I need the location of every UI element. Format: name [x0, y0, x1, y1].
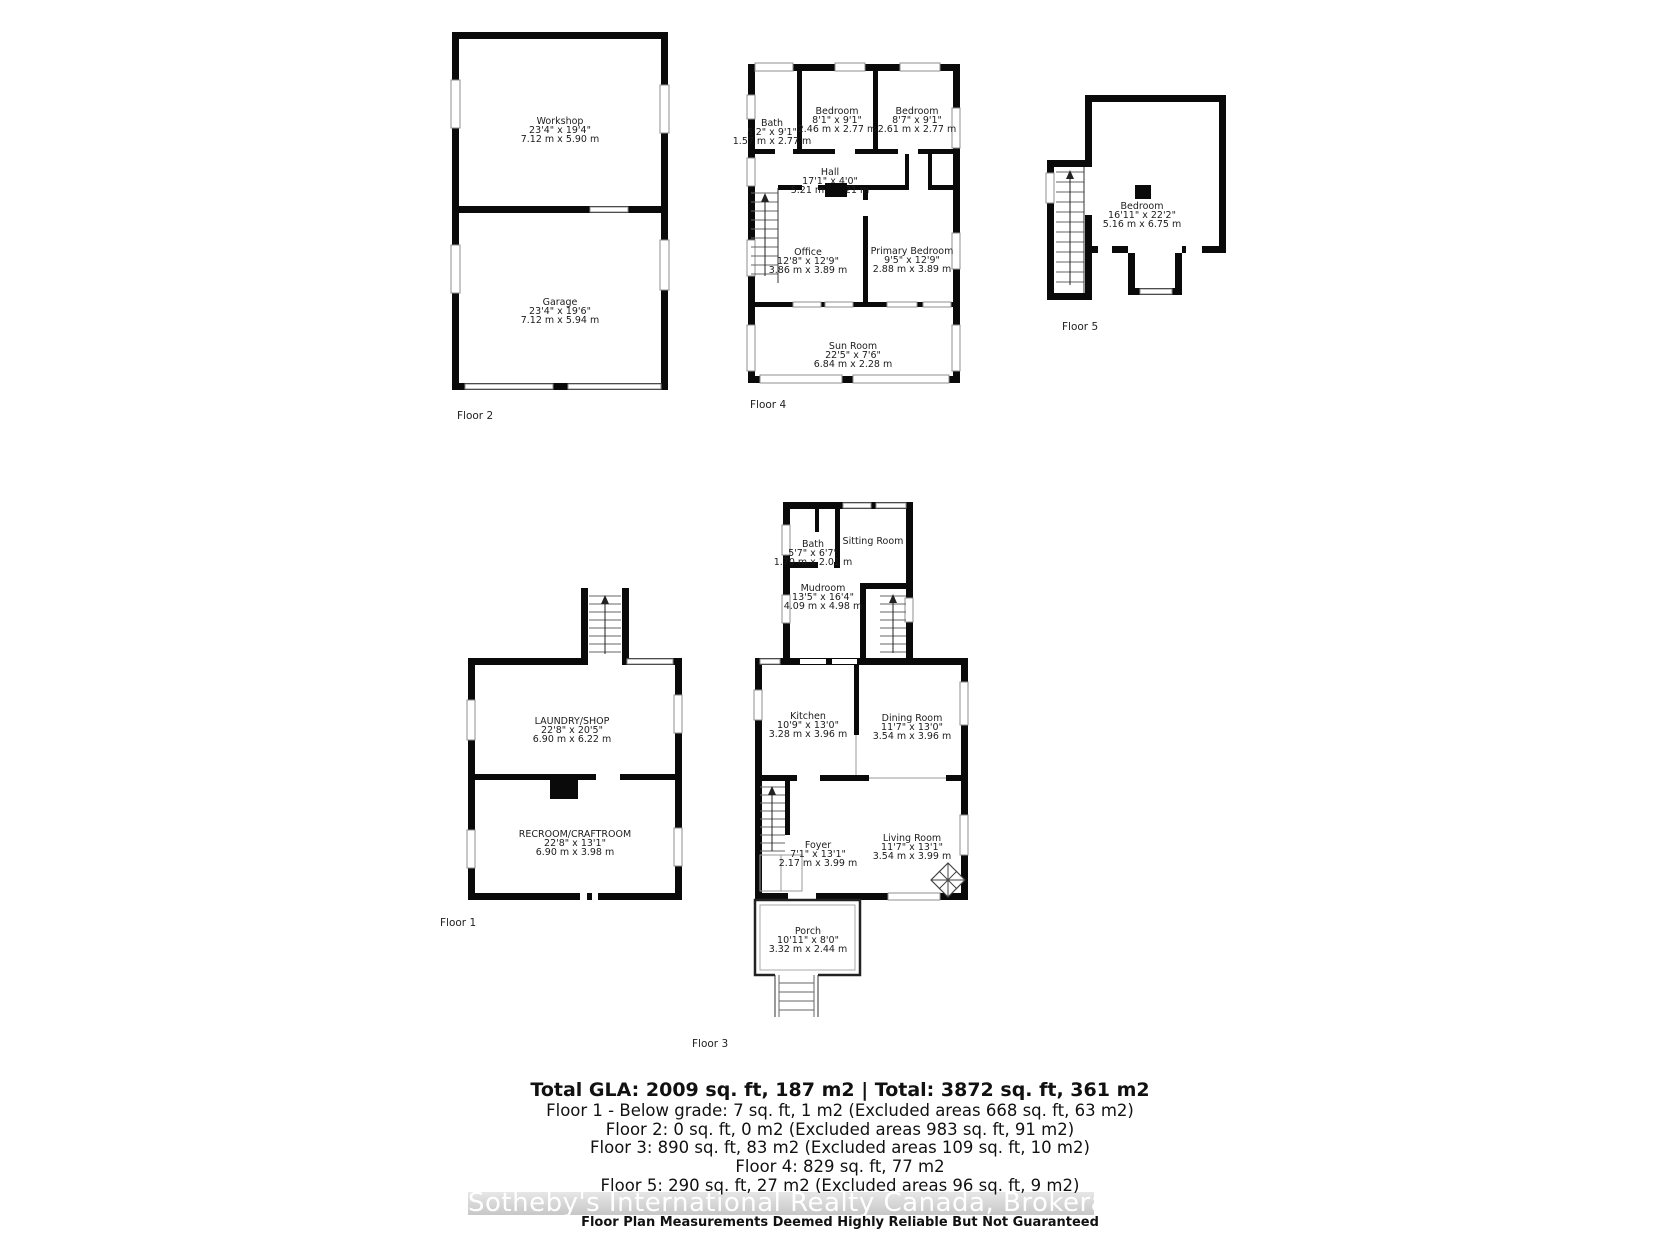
room-label-f3-bath-metric: 1.70 m x 2.01 m	[774, 557, 853, 568]
floor5-stairs	[1056, 167, 1084, 293]
room-label-f4-primary-metric: 2.88 m x 3.89 m	[873, 264, 952, 275]
floor5-chimney	[1135, 185, 1151, 199]
room-label-f4-bath-metric: 1.57 m x 2.77 m	[733, 136, 812, 147]
summary-floor5: Floor 5: 290 sq. ft, 27 m2 (Excluded are…	[0, 1177, 1680, 1196]
summary-floor4: Floor 4: 829 sq. ft, 77 m2	[0, 1158, 1680, 1177]
summary-total: Total GLA: 2009 sq. ft, 187 m2 | Total: …	[0, 1079, 1680, 1101]
floor-5-plan: Bedroom 16'11" x 22'2" 5.16 m x 6.75 m F…	[1040, 75, 1240, 345]
room-label-f3-foyer-metric: 2.17 m x 3.99 m	[779, 858, 858, 869]
area-summary: Total GLA: 2009 sq. ft, 187 m2 | Total: …	[0, 1079, 1680, 1196]
room-label-f4-sunroom-metric: 6.84 m x 2.28 m	[814, 359, 893, 370]
floor1-stairs	[589, 595, 621, 654]
floor-3-plan: Bath 5'7" x 6'7" 1.70 m x 2.01 m Sitting…	[680, 455, 1000, 1055]
room-label-f3-kitchen-metric: 3.28 m x 3.96 m	[769, 729, 848, 740]
floor-5-label: Floor 5	[1062, 321, 1098, 333]
room-label-recroom-metric: 6.90 m x 3.98 m	[536, 847, 615, 858]
floor-2-plan: Workshop 23'4" x 19'4" 7.12 m x 5.90 m G…	[440, 20, 680, 440]
floor-1-plan: LAUNDRY/SHOP 22'8" x 20'5" 6.90 m x 6.22…	[430, 540, 690, 940]
room-label-f3-mudroom-metric: 4.09 m x 4.98 m	[784, 601, 863, 612]
room-label-laundry-metric: 6.90 m x 6.22 m	[533, 734, 612, 745]
floor-4-plan: Bath 5'2" x 9'1" 1.57 m x 2.77 m Bedroom…	[735, 50, 975, 420]
room-label-f3-living-metric: 3.54 m x 3.99 m	[873, 851, 952, 862]
disclaimer-text: Floor Plan Measurements Deemed Highly Re…	[0, 1215, 1680, 1230]
room-label-f3-dining-metric: 3.54 m x 3.96 m	[873, 731, 952, 742]
room-label-f5-bedroom-metric: 5.16 m x 6.75 m	[1103, 219, 1182, 230]
room-label-f3-porch-metric: 3.32 m x 2.44 m	[769, 944, 848, 955]
room-label-workshop-metric: 7.12 m x 5.90 m	[521, 134, 600, 145]
floor3-annex-stairs	[880, 594, 906, 653]
room-label-f4-bedroom1-metric: 2.46 m x 2.77 m	[798, 124, 877, 135]
floorplan-page: Workshop 23'4" x 19'4" 7.12 m x 5.90 m G…	[0, 0, 1680, 1260]
floor1-chimney	[550, 780, 578, 799]
floor3-compass-diamond	[931, 863, 965, 897]
summary-floor3: Floor 3: 890 sq. ft, 83 m2 (Excluded are…	[0, 1139, 1680, 1158]
floor3-porch-steps	[775, 975, 818, 1017]
floor3-foyer-stairs	[760, 786, 802, 891]
floor-4-label: Floor 4	[750, 399, 786, 411]
room-label-garage-metric: 7.12 m x 5.94 m	[521, 315, 600, 326]
floor2-walls	[452, 32, 668, 390]
floor4-chimney	[825, 183, 847, 197]
room-label-f4-office-metric: 3.86 m x 3.89 m	[769, 265, 848, 276]
floor-2-label: Floor 2	[457, 410, 493, 422]
summary-floor2: Floor 2: 0 sq. ft, 0 m2 (Excluded areas …	[0, 1121, 1680, 1140]
room-label-f4-bedroom2-metric: 2.61 m x 2.77 m	[878, 124, 957, 135]
room-label-f3-sitting-name: Sitting Room	[843, 536, 904, 547]
floor5-windows	[1046, 173, 1172, 294]
floor-3-label: Floor 3	[692, 1038, 728, 1050]
floor-1-label: Floor 1	[440, 917, 476, 929]
summary-floor1: Floor 1 - Below grade: 7 sq. ft, 1 m2 (E…	[0, 1102, 1680, 1121]
